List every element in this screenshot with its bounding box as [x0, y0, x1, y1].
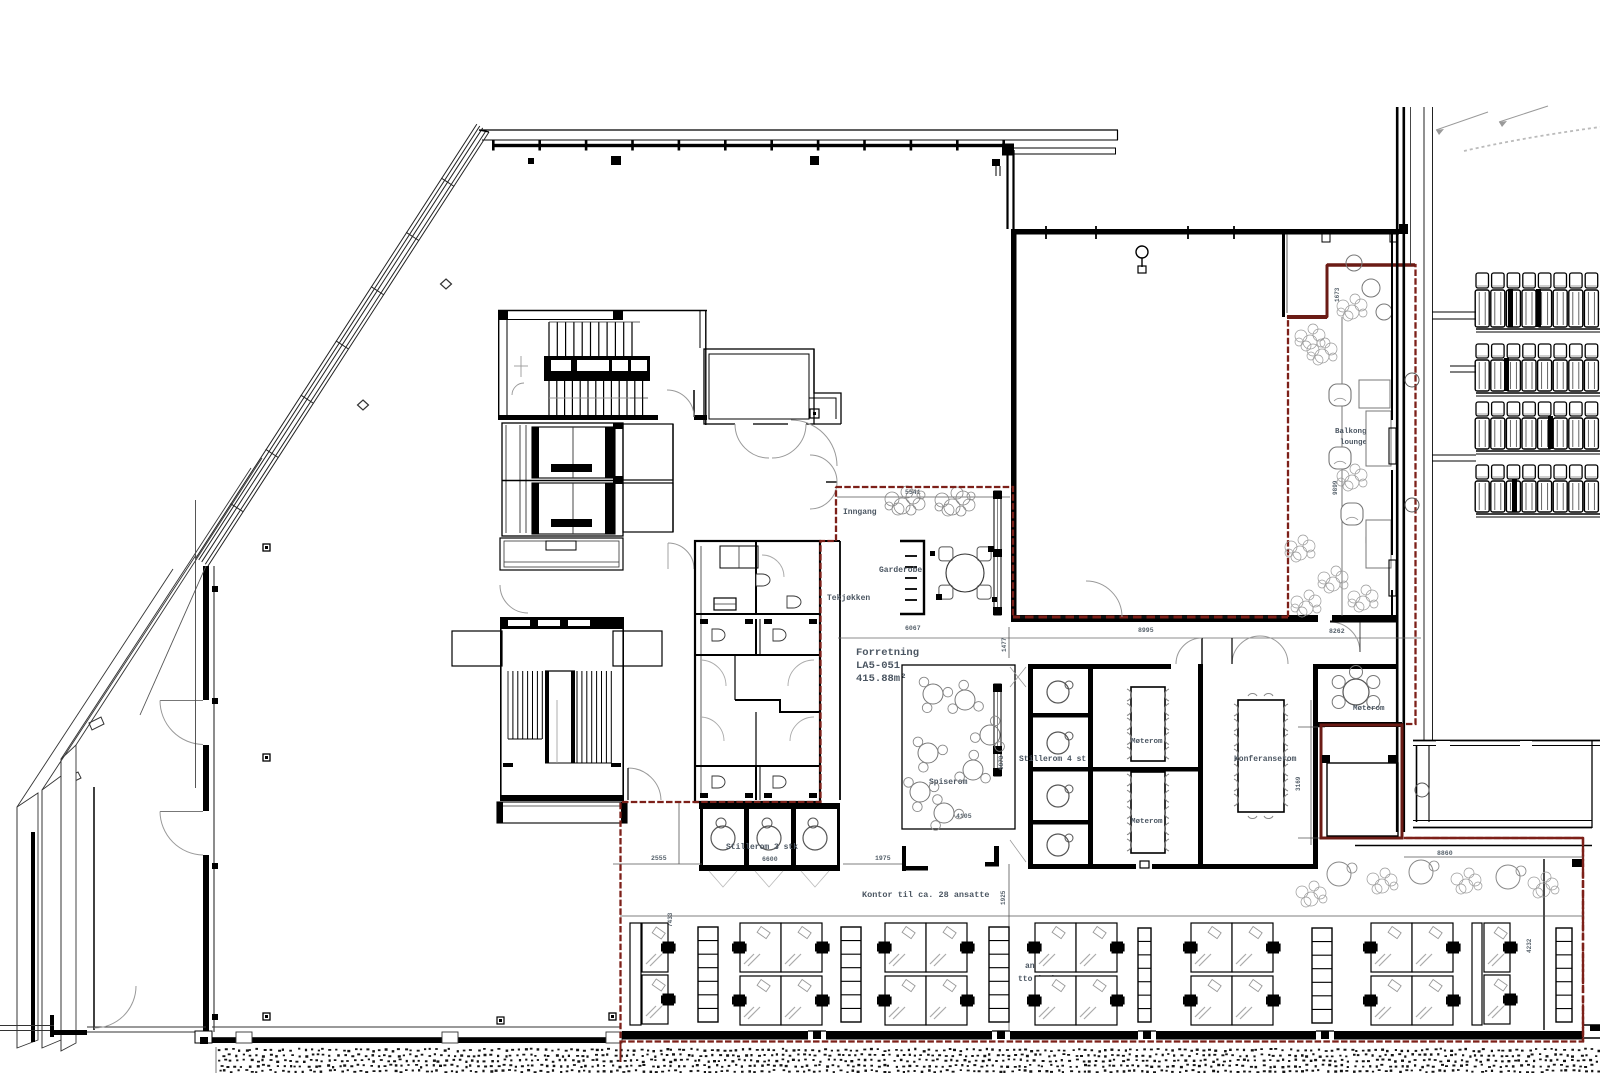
svg-text:8995: 8995: [1138, 627, 1154, 634]
svg-text:8860: 8860: [1437, 850, 1453, 857]
svg-text:Tekjøkken: Tekjøkken: [827, 594, 870, 603]
svg-text:Kontor til ca. 28 ansatte: Kontor til ca. 28 ansatte: [862, 890, 990, 900]
svg-text:6600: 6600: [762, 856, 778, 863]
svg-text:6067: 6067: [905, 625, 921, 632]
svg-text:6873: 6873: [998, 755, 1005, 770]
svg-text:1925: 1925: [1000, 890, 1007, 905]
svg-text:Stillerom 3 stk: Stillerom 3 stk: [726, 843, 798, 852]
svg-text:Forretning: Forretning: [856, 647, 919, 659]
svg-text:8262: 8262: [1329, 628, 1345, 635]
svg-text:1673: 1673: [1334, 287, 1341, 302]
svg-text:Konferanserom: Konferanserom: [1234, 755, 1297, 764]
svg-text:LA5-051: LA5-051: [856, 660, 900, 672]
svg-text:Garderobe: Garderobe: [879, 566, 922, 575]
svg-text:Møterom: Møterom: [1353, 705, 1385, 713]
svg-text:1975: 1975: [875, 855, 891, 862]
svg-text:lounge: lounge: [1340, 439, 1368, 447]
svg-text:9899: 9899: [1332, 480, 1339, 495]
svg-text:4232: 4232: [1526, 938, 1533, 953]
svg-text:1477: 1477: [1001, 637, 1008, 652]
svg-text:3169: 3169: [1295, 776, 1302, 791]
svg-text:Stillerom 4 st: Stillerom 4 st: [1019, 755, 1086, 764]
svg-text:Møterom: Møterom: [1131, 738, 1163, 746]
svg-text:Møterom: Møterom: [1131, 818, 1163, 826]
svg-text:Inngang: Inngang: [843, 508, 877, 517]
svg-text:2555: 2555: [651, 855, 667, 862]
svg-text:415.88m²: 415.88m²: [856, 673, 906, 685]
